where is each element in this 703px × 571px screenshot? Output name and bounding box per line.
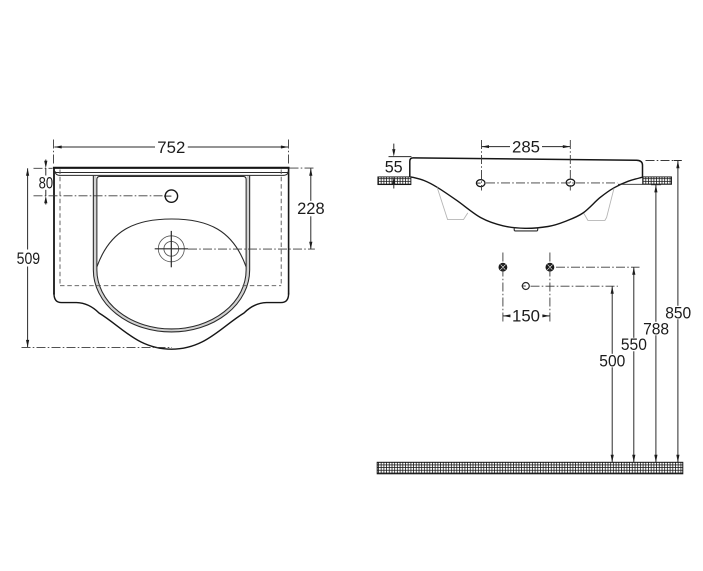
svg-text:752: 752 [157, 139, 185, 157]
svg-text:150: 150 [512, 308, 540, 326]
svg-text:55: 55 [385, 158, 403, 176]
svg-text:788: 788 [643, 320, 669, 338]
svg-text:509: 509 [17, 250, 41, 268]
svg-text:228: 228 [297, 200, 325, 218]
svg-text:500: 500 [599, 352, 625, 370]
svg-text:80: 80 [39, 174, 54, 192]
svg-text:285: 285 [512, 139, 540, 157]
